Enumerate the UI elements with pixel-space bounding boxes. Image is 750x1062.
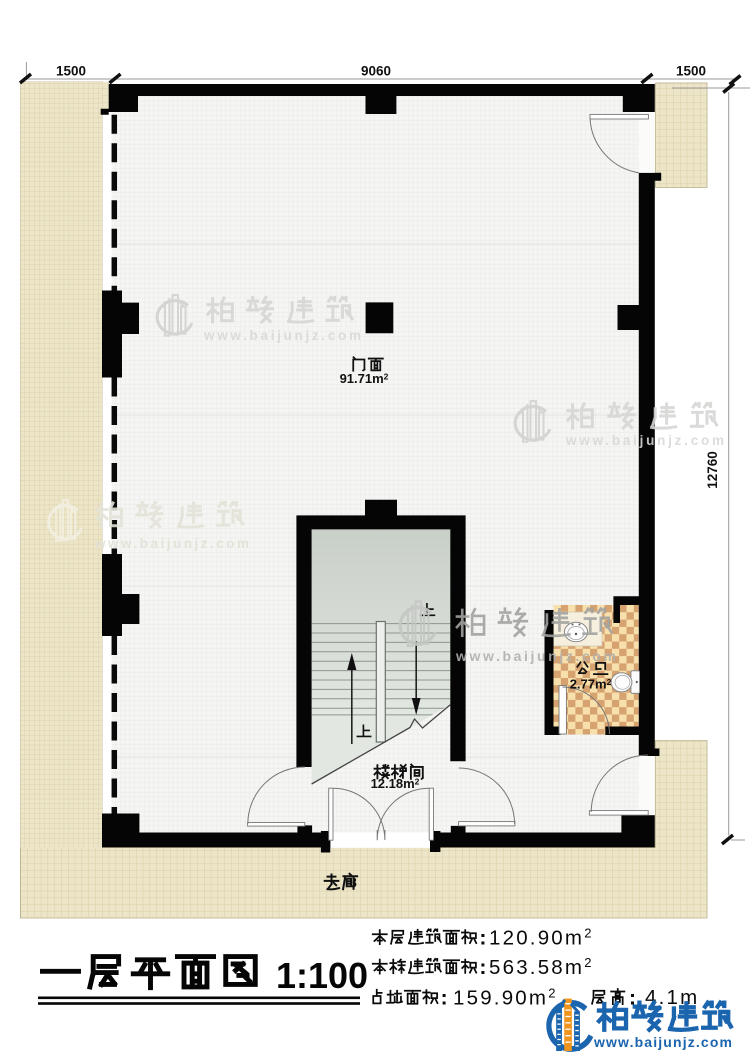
svg-text:563.58m2: 563.58m2 xyxy=(489,955,594,979)
svg-text:1500: 1500 xyxy=(676,64,706,79)
svg-text:12760: 12760 xyxy=(705,451,720,489)
svg-text:91.71m2: 91.71m2 xyxy=(340,371,389,386)
svg-text:www.baijunjz.com: www.baijunjz.com xyxy=(593,1034,732,1050)
svg-text:1:100: 1:100 xyxy=(276,955,368,996)
svg-text:9060: 9060 xyxy=(361,64,391,79)
svg-text:120.90m2: 120.90m2 xyxy=(489,926,594,950)
svg-text:12.18m2: 12.18m2 xyxy=(371,776,420,791)
svg-text:2.77m2: 2.77m2 xyxy=(570,677,612,692)
svg-text:1500: 1500 xyxy=(56,64,86,79)
svg-text:159.90m2: 159.90m2 xyxy=(453,986,558,1010)
